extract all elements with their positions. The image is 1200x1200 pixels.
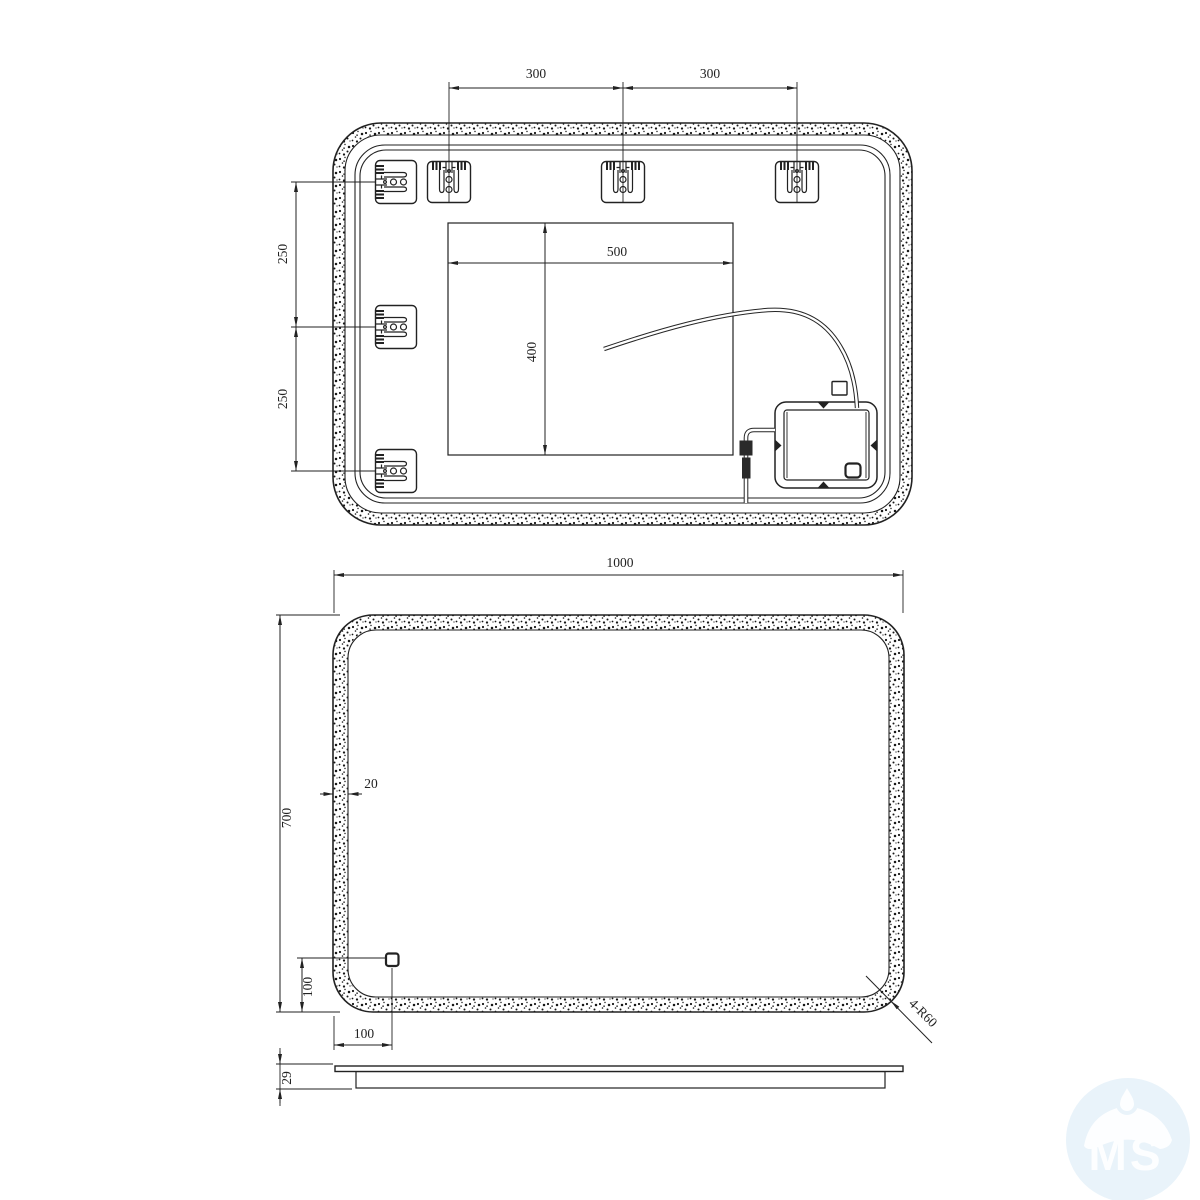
mirror-technical-drawing-page: MS <box>0 0 1200 1200</box>
dim-label-side-spacing-lower: 250 <box>275 389 290 410</box>
dim-label-bracket-spacing-right: 300 <box>700 66 721 81</box>
dim-label-frame-thickness: 20 <box>364 776 378 791</box>
touch-sensor-square <box>386 954 399 967</box>
mounting-bracket <box>376 306 417 349</box>
dim-label-cutout-width: 500 <box>607 244 628 259</box>
dim-label-width: 1000 <box>607 555 634 570</box>
dim-label-height: 700 <box>279 808 294 829</box>
mounting-bracket <box>376 161 417 204</box>
dim-label-cutout-height: 400 <box>524 342 539 363</box>
technical-drawing: MS <box>0 0 1200 1200</box>
mounting-bracket <box>376 450 417 493</box>
dim-label-side-spacing-upper: 250 <box>275 244 290 265</box>
side-glass-panel <box>335 1066 903 1072</box>
ms-watermark-logo: MS <box>1066 1078 1190 1200</box>
dim-label-bracket-spacing-left: 300 <box>526 66 547 81</box>
cable-connector-body <box>742 458 751 479</box>
watermark-text: MS <box>1089 1128 1164 1180</box>
cable-connector <box>740 441 753 456</box>
sensor-square <box>832 382 847 396</box>
side-back-frame <box>356 1072 885 1089</box>
junction-box-switch <box>846 464 861 478</box>
dim-label-sensor-from-bottom: 100 <box>300 977 315 998</box>
junction-box <box>775 402 877 488</box>
canvas-background <box>0 0 1200 1200</box>
dim-label-depth: 29 <box>279 1071 294 1085</box>
dim-label-sensor-from-left: 100 <box>354 1026 375 1041</box>
